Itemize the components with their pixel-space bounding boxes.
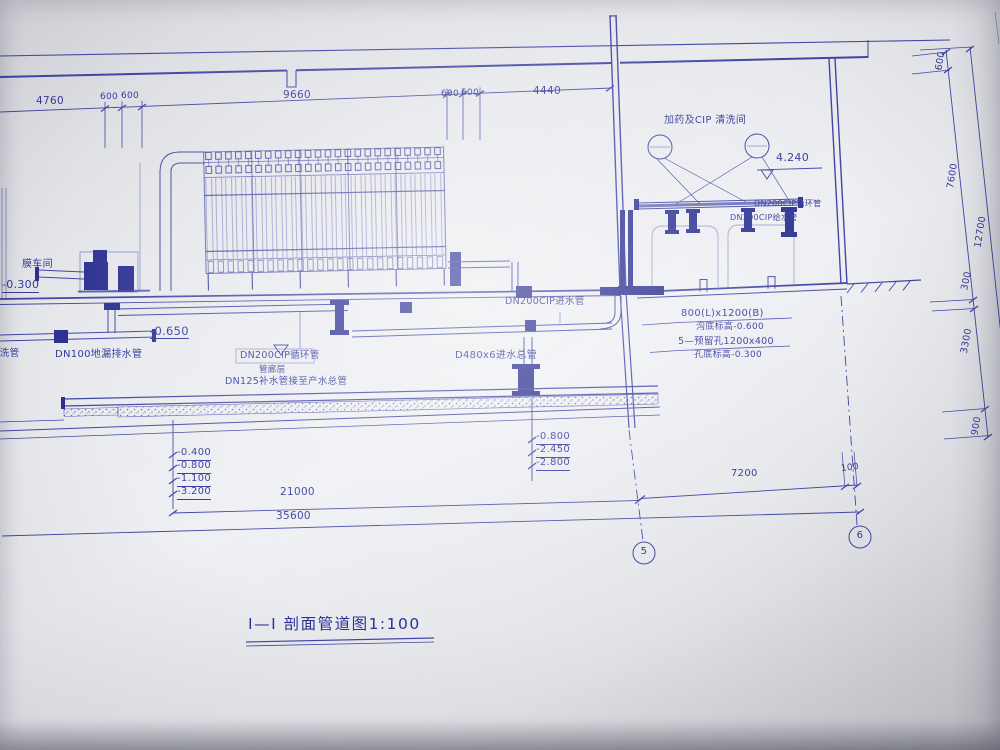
right-elev-1: -0.800 [536, 432, 570, 445]
top-dim-600c: 600 [441, 90, 459, 99]
blueprint-photo: 4760 600 600 9660 600 600 4440 加药及CIP 清洗… [0, 0, 1000, 750]
top-dim-600b: 600 [121, 92, 139, 101]
left-elev-2: -0.800 [177, 461, 211, 474]
dim-35600: 35600 [276, 511, 311, 522]
left-elev-3: -1.100 [177, 474, 211, 487]
floor-drain-pipe-label: DN100地漏排水管 [55, 350, 142, 361]
left-elev-1: -0.400 [177, 448, 211, 461]
drawing-linework [0, 0, 1000, 750]
note-trench-bottom: 沟底标高-0.600 [696, 323, 764, 332]
membrane-hall-label: 膜车间 [22, 260, 53, 271]
note-reserved-holes: 5—预留孔1200x400 [678, 337, 774, 347]
cip-circulation-mid-label: DN200CIP循环管 [240, 351, 320, 361]
dim-21000: 21000 [280, 487, 315, 498]
makeup-pipe-label: DN125补水管接至产水总管 [225, 377, 347, 387]
dim-7200: 7200 [731, 469, 758, 480]
note-hole-bottom: 孔底标高-0.300 [694, 351, 762, 360]
right-elev-2: -2.450 [536, 445, 570, 458]
cip-room-equipment [620, 134, 822, 353]
hall-floor-elevation: -0.300 [2, 279, 39, 293]
drawing-title: I—I 剖面管道图1:100 [248, 616, 421, 632]
grid-bubble-6: 6 [853, 531, 867, 542]
building-structure [0, 12, 999, 428]
left-elev-4: -3.200 [177, 487, 211, 500]
gallery-piping [0, 286, 664, 439]
note-trench-size: 800(L)x1200(B) [681, 309, 764, 320]
cip-inlet-pipe-label: DN200CIP进水管 [505, 297, 585, 307]
cip-supply-right-label: DN200CIP给水管 [730, 214, 797, 222]
top-dim-600d: 600 [461, 89, 479, 98]
dimension-lines [0, 46, 1000, 646]
top-dim-4440: 4440 [524, 86, 570, 97]
main-inlet-pipe-label: D480x6进水总管 [455, 351, 537, 362]
right-elev-3: -2.800 [536, 458, 570, 471]
gallery-level-label: 管廊层 [259, 366, 285, 375]
grid-bubble-5: 5 [637, 547, 651, 558]
cip-pipe-level: 4.240 [776, 152, 809, 164]
top-dim-600a: 600 [100, 93, 118, 102]
trench-elevation: -0.650 [150, 325, 189, 339]
cip-circulation-right-label: DN200CIP循环管 [754, 200, 821, 208]
top-dim-4760: 4760 [20, 96, 80, 107]
membrane-rack [204, 147, 447, 291]
air-wash-pipe-label: 气洗管 [0, 349, 19, 359]
cip-room-label: 加药及CIP 清洗间 [664, 116, 746, 127]
top-dim-9660: 9660 [272, 90, 322, 101]
